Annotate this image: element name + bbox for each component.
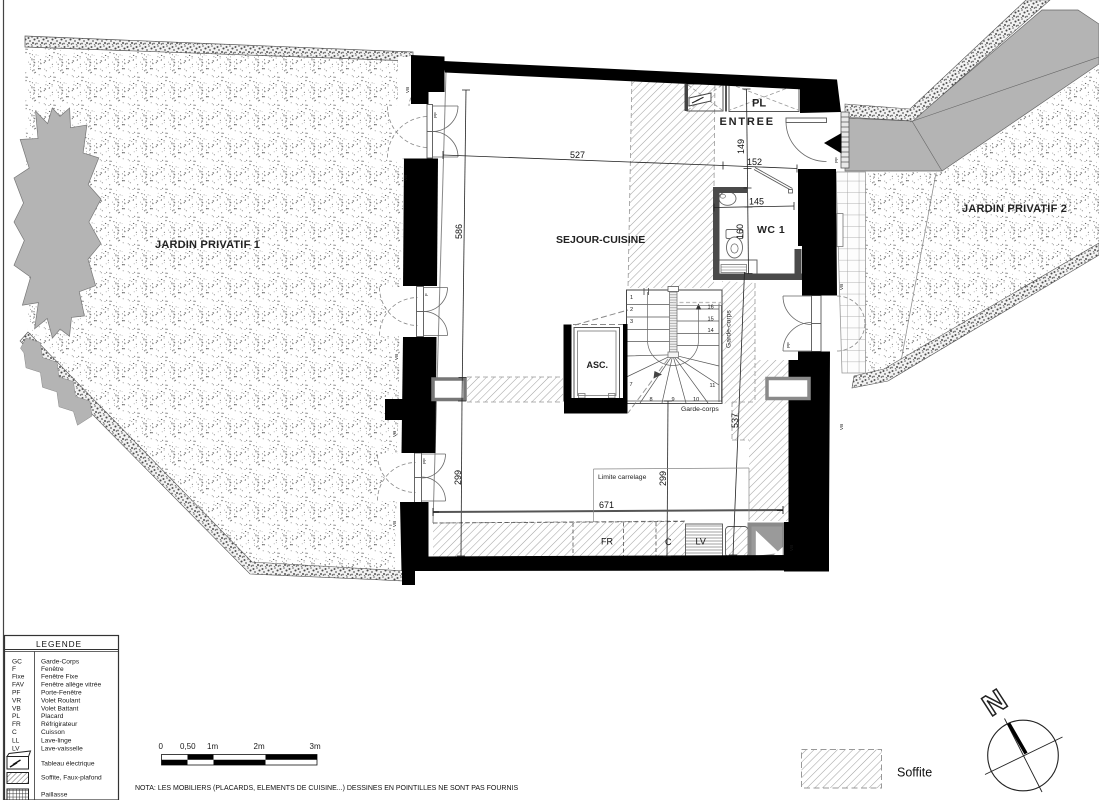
svg-text:PL: PL	[12, 713, 20, 720]
svg-text:FR: FR	[12, 721, 21, 728]
svg-text:VB: VB	[12, 706, 21, 713]
svg-text:VB: VB	[405, 87, 410, 93]
svg-text:Soffite: Soffite	[897, 766, 932, 780]
svg-text:F: F	[12, 666, 16, 673]
svg-text:1: 1	[630, 295, 633, 301]
svg-text:VB: VB	[839, 424, 844, 430]
svg-text:VR: VR	[12, 698, 21, 705]
svg-text:VB: VB	[392, 431, 397, 437]
svg-text:NOTA: LES MOBILIERS (PLACARDS,: NOTA: LES MOBILIERS (PLACARDS, ELEMENTS …	[135, 785, 518, 792]
svg-text:Placard: Placard	[41, 713, 64, 720]
svg-text:11: 11	[710, 383, 716, 389]
svg-text:8: 8	[650, 397, 653, 403]
svg-text:0,50: 0,50	[180, 742, 196, 751]
svg-text:152: 152	[747, 157, 762, 167]
svg-text:Fenêtre Fixe: Fenêtre Fixe	[41, 674, 78, 681]
svg-text:9: 9	[672, 397, 675, 403]
svg-text:JARDIN PRIVATIF 2: JARDIN PRIVATIF 2	[962, 203, 1067, 215]
svg-text:Porte-Fenêtre: Porte-Fenêtre	[41, 690, 82, 697]
svg-text:7: 7	[630, 382, 633, 388]
svg-text:PF: PF	[12, 690, 20, 697]
svg-text:Fenêtre: Fenêtre	[41, 666, 64, 673]
svg-text:VB: VB	[789, 545, 794, 551]
svg-text:LL: LL	[12, 738, 20, 745]
svg-text:Tableau électrique: Tableau électrique	[41, 761, 95, 768]
svg-text:LV: LV	[696, 537, 706, 547]
svg-text:671: 671	[599, 500, 614, 510]
svg-text:145: 145	[749, 197, 764, 207]
svg-text:0: 0	[159, 742, 164, 751]
svg-text:GC: GC	[12, 659, 22, 666]
svg-text:SEJOUR-CUISINE: SEJOUR-CUISINE	[556, 234, 645, 246]
svg-text:WC 1: WC 1	[757, 224, 785, 236]
svg-text:10: 10	[693, 397, 699, 403]
svg-text:PF: PF	[422, 458, 427, 464]
svg-text:VB: VB	[392, 521, 397, 527]
svg-text:Lave-linge: Lave-linge	[41, 738, 72, 745]
svg-text:15: 15	[708, 317, 714, 323]
svg-text:Fenêtre allège vitrée: Fenêtre allège vitrée	[41, 682, 101, 689]
svg-text:527: 527	[570, 150, 585, 160]
svg-text:Lave-vaisselle: Lave-vaisselle	[41, 746, 83, 753]
svg-text:16: 16	[708, 305, 714, 311]
svg-text:Volet Battant: Volet Battant	[41, 706, 79, 713]
svg-text:299: 299	[658, 471, 668, 486]
svg-text:299: 299	[453, 470, 463, 485]
svg-text:Réfrigirateur: Réfrigirateur	[41, 721, 78, 728]
svg-text:Limite carrelage: Limite carrelage	[598, 474, 647, 481]
svg-text:Fixe: Fixe	[12, 674, 25, 681]
svg-text:2m: 2m	[254, 742, 265, 751]
svg-text:PF: PF	[834, 157, 839, 163]
svg-text:ASC.: ASC.	[587, 360, 609, 370]
svg-text:Cuisson: Cuisson	[41, 729, 65, 736]
svg-text:VB: VB	[394, 354, 399, 360]
svg-text:LV: LV	[12, 746, 20, 753]
svg-text:149: 149	[736, 139, 746, 154]
svg-text:14: 14	[708, 328, 714, 334]
svg-text:160: 160	[735, 224, 745, 239]
svg-text:Volet Roulant: Volet Roulant	[41, 698, 80, 705]
svg-text:Garde-corps: Garde-corps	[726, 310, 733, 348]
svg-text:C: C	[12, 729, 17, 736]
svg-text:C: C	[665, 537, 672, 547]
svg-text:FR: FR	[601, 537, 613, 547]
svg-text:Garde-corps: Garde-corps	[681, 406, 719, 413]
svg-text:VB: VB	[839, 284, 844, 290]
svg-text:VB: VB	[403, 175, 408, 181]
svg-text:537: 537	[730, 413, 740, 428]
svg-text:1m: 1m	[207, 742, 218, 751]
svg-text:Soffite, Faux-plafond: Soffite, Faux-plafond	[41, 775, 102, 782]
svg-text:JARDIN PRIVATIF 1: JARDIN PRIVATIF 1	[155, 239, 260, 251]
svg-text:PL: PL	[752, 98, 766, 110]
svg-text:Garde-Corps: Garde-Corps	[41, 659, 80, 666]
svg-text:F: F	[424, 293, 429, 296]
svg-text:PF: PF	[433, 112, 438, 118]
svg-text:3m: 3m	[310, 742, 321, 751]
svg-text:3: 3	[630, 319, 633, 325]
svg-text:586: 586	[454, 224, 464, 239]
svg-text:LEGENDE: LEGENDE	[36, 639, 82, 649]
svg-text:Paillasse: Paillasse	[41, 792, 68, 799]
svg-text:2: 2	[630, 307, 633, 313]
svg-text:FAV: FAV	[12, 682, 25, 689]
svg-text:PF: PF	[786, 342, 791, 348]
